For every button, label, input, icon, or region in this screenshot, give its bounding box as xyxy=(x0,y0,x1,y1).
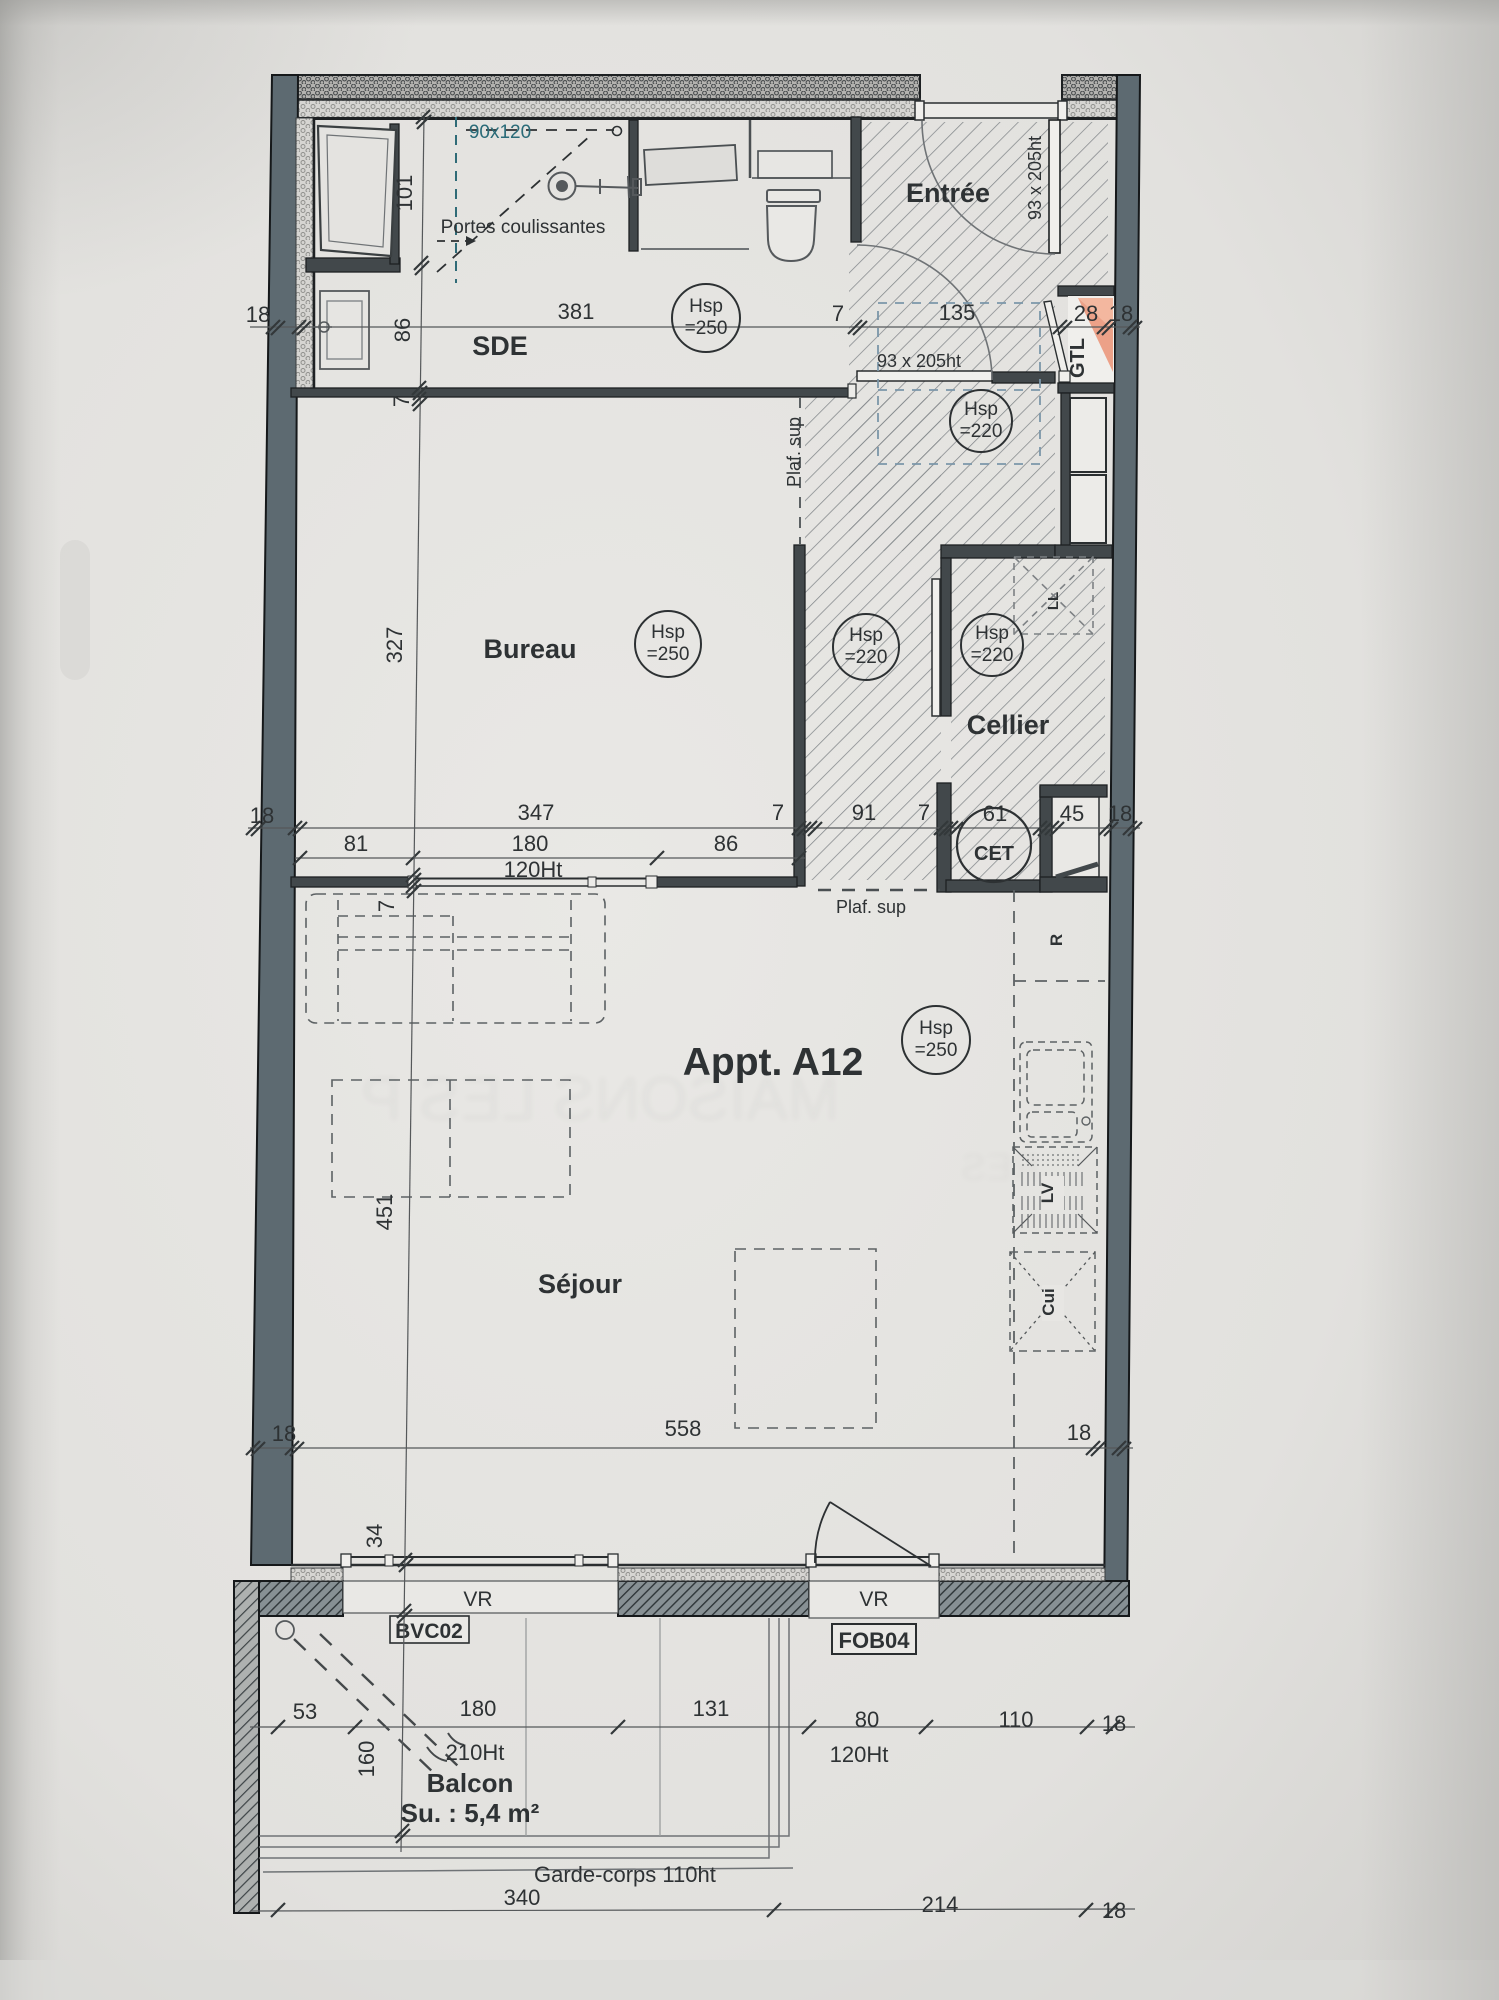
svg-text:SDE: SDE xyxy=(472,331,528,361)
svg-text:180: 180 xyxy=(460,1696,497,1721)
svg-text:LL: LL xyxy=(1045,592,1062,610)
svg-text:Hsp: Hsp xyxy=(919,1018,953,1039)
svg-text:Hsp: Hsp xyxy=(849,625,883,646)
svg-text:=250: =250 xyxy=(647,644,690,665)
svg-text:558: 558 xyxy=(665,1416,702,1441)
svg-text:347: 347 xyxy=(518,800,555,825)
svg-text:=250: =250 xyxy=(915,1040,958,1061)
svg-text:Plaf. sup: Plaf. sup xyxy=(836,897,906,917)
svg-text:7: 7 xyxy=(832,301,844,326)
svg-text:210Ht: 210Ht xyxy=(446,1740,505,1765)
svg-text:86: 86 xyxy=(714,831,738,856)
svg-text:80: 80 xyxy=(855,1707,879,1732)
svg-text:Séjour: Séjour xyxy=(538,1269,623,1299)
svg-text:61: 61 xyxy=(983,801,1007,826)
svg-text:91: 91 xyxy=(852,800,876,825)
svg-text:18: 18 xyxy=(272,1421,296,1446)
svg-text:Bureau: Bureau xyxy=(483,634,576,664)
svg-text:VR: VR xyxy=(463,1588,492,1611)
svg-text:=220: =220 xyxy=(845,647,888,668)
svg-text:131: 131 xyxy=(693,1696,730,1721)
svg-text:18: 18 xyxy=(1109,301,1133,326)
svg-text:7: 7 xyxy=(772,800,784,825)
svg-text:214: 214 xyxy=(922,1892,959,1917)
svg-text:7: 7 xyxy=(918,800,930,825)
svg-text:18: 18 xyxy=(1067,1420,1091,1445)
svg-text:CET: CET xyxy=(974,843,1014,865)
svg-text:Hsp: Hsp xyxy=(964,399,998,420)
svg-text:53: 53 xyxy=(293,1699,317,1724)
svg-text:BVC02: BVC02 xyxy=(395,1620,463,1643)
svg-text:Hsp: Hsp xyxy=(651,622,685,643)
svg-text:=250: =250 xyxy=(685,318,728,339)
svg-text:451: 451 xyxy=(372,1194,397,1231)
svg-text:34: 34 xyxy=(362,1524,387,1548)
svg-text:110: 110 xyxy=(998,1707,1033,1732)
svg-text:160: 160 xyxy=(354,1741,379,1778)
svg-text:Garde-corps 110ht: Garde-corps 110ht xyxy=(534,1862,716,1887)
svg-text:RES: RES xyxy=(961,1147,1039,1189)
svg-text:Portes coulissantes: Portes coulissantes xyxy=(441,217,606,238)
svg-text:101: 101 xyxy=(392,175,417,212)
svg-text:340: 340 xyxy=(504,1885,541,1910)
svg-text:90x120: 90x120 xyxy=(469,122,531,143)
svg-text:45: 45 xyxy=(1060,801,1084,826)
svg-text:=220: =220 xyxy=(960,421,1003,442)
svg-text:Balcon: Balcon xyxy=(427,1768,514,1798)
svg-text:GTL: GTL xyxy=(1067,338,1089,378)
svg-text:7: 7 xyxy=(389,395,414,407)
svg-text:7: 7 xyxy=(374,900,399,912)
svg-text:Entrée: Entrée xyxy=(906,178,990,208)
svg-text:381: 381 xyxy=(558,299,595,324)
svg-text:Cui: Cui xyxy=(1039,1288,1058,1315)
svg-text:R: R xyxy=(1047,934,1066,946)
svg-text:120Ht: 120Ht xyxy=(830,1742,889,1767)
svg-text:VR: VR xyxy=(859,1588,888,1611)
svg-text:81: 81 xyxy=(344,831,368,856)
svg-text:Hsp: Hsp xyxy=(975,623,1009,644)
svg-text:Cellier: Cellier xyxy=(967,710,1050,740)
svg-text:18: 18 xyxy=(1108,801,1132,826)
svg-text:MAISONS LES P: MAISONS LES P xyxy=(361,1065,840,1134)
svg-text:93 x 205ht: 93 x 205ht xyxy=(877,351,961,371)
svg-text:Su. : 5,4 m²: Su. : 5,4 m² xyxy=(401,1798,540,1828)
svg-text:18: 18 xyxy=(250,803,274,828)
svg-text:LV: LV xyxy=(1038,1182,1057,1203)
svg-text:18: 18 xyxy=(1102,1711,1126,1736)
svg-text:=220: =220 xyxy=(971,645,1014,666)
svg-text:18: 18 xyxy=(246,302,270,327)
svg-text:135: 135 xyxy=(939,300,976,325)
svg-text:120Ht: 120Ht xyxy=(504,857,563,882)
svg-text:Hsp: Hsp xyxy=(689,296,723,317)
svg-text:18: 18 xyxy=(1102,1898,1126,1923)
svg-text:180: 180 xyxy=(512,831,549,856)
svg-text:FOB04: FOB04 xyxy=(839,1628,911,1653)
svg-text:93 x 205ht: 93 x 205ht xyxy=(1025,136,1045,220)
svg-text:Plaf. sup: Plaf. sup xyxy=(784,417,804,487)
svg-text:327: 327 xyxy=(382,627,407,664)
svg-text:28: 28 xyxy=(1074,301,1098,326)
svg-text:86: 86 xyxy=(390,318,415,342)
